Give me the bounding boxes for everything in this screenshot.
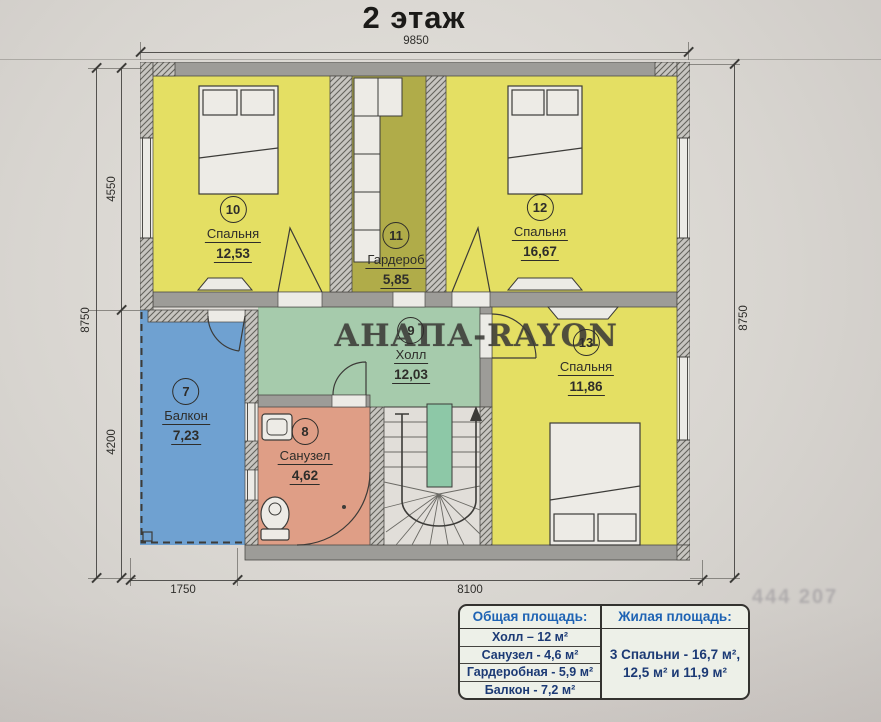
room-number-badge: 12 <box>527 194 554 221</box>
room-number-badge: 10 <box>220 196 247 223</box>
room-number-badge: 7 <box>173 378 200 405</box>
room-name: Балкон <box>162 408 210 425</box>
legend-total-header: Общая площадь: <box>460 606 600 629</box>
room-label-hall-9: 9 Холл 12,03 <box>392 317 430 384</box>
legend-total-column: Общая площадь: Холл – 12 м² Санузел - 4,… <box>460 606 602 698</box>
room-name: Спальня <box>205 226 261 243</box>
floor-plan-photo: 2 этаж 444 207 <box>0 0 881 722</box>
dimension-line-right <box>734 64 735 578</box>
area-legend-table: Общая площадь: Холл – 12 м² Санузел - 4,… <box>458 604 750 700</box>
dimension-value-top: 9850 <box>394 35 438 47</box>
extension-line <box>130 558 131 586</box>
dimension-value-left-lower: 4200 <box>106 420 118 464</box>
legend-living-column: Жилая площадь: 3 Спальни - 16,7 м², 12,5… <box>602 606 748 698</box>
dimension-value-right: 8750 <box>738 296 750 340</box>
room-name: Спальня <box>558 359 614 376</box>
legend-row-bathroom: Санузел - 4,6 м² <box>460 647 600 665</box>
room-name: Холл <box>394 347 429 364</box>
room-label-bedroom-12: 12 Спальня 16,67 <box>512 194 568 261</box>
room-area: 12,03 <box>392 367 430 384</box>
bed-bedroom-13 <box>550 423 640 545</box>
dimension-value-left-outer: 8750 <box>80 298 92 342</box>
room-area: 12,53 <box>214 246 252 263</box>
dimension-value-left-upper: 4550 <box>106 167 118 211</box>
room-label-balcony-7: 7 Балкон 7,23 <box>162 378 210 445</box>
legend-living-line: 3 Спальни - 16,7 м², <box>610 647 740 662</box>
dimension-line-left-outer <box>96 68 97 578</box>
dimension-line-top <box>140 52 688 53</box>
bed-bedroom-10 <box>199 86 278 194</box>
room-label-bedroom-10: 10 Спальня 12,53 <box>205 196 261 263</box>
room-label-wardrobe-11: 11 Гардероб 5,85 <box>365 222 426 289</box>
room-area: 7,23 <box>171 428 201 445</box>
floor-plan-drawing <box>140 62 690 568</box>
dimension-value-bottom-left: 1750 <box>161 584 205 596</box>
room-label-bathroom-8: 8 Санузел 4,62 <box>278 418 333 485</box>
room-name: Санузел <box>278 448 333 465</box>
room-label-bedroom-13: 13 Спальня 11,86 <box>558 329 614 396</box>
room-name: Спальня <box>512 224 568 241</box>
room-area: 5,85 <box>381 272 411 289</box>
stair-shaft <box>427 404 452 487</box>
room-area: 11,86 <box>567 379 604 396</box>
legend-living-header: Жилая площадь: <box>602 606 748 629</box>
room-name: Гардероб <box>365 252 426 269</box>
dimension-line-left-inner <box>121 68 122 578</box>
legend-living-line: 12,5 м² и 11,9 м² <box>623 665 727 680</box>
dimension-line-bottom <box>130 580 702 581</box>
bed-bedroom-12 <box>508 86 582 194</box>
room-number-badge: 11 <box>382 222 409 249</box>
extension-line <box>702 560 703 586</box>
room-number-badge: 8 <box>292 418 319 445</box>
dimension-value-bottom-right: 8100 <box>448 584 492 596</box>
legend-row-wardrobe: Гардеробная - 5,9 м² <box>460 664 600 682</box>
page-edge-line <box>0 59 881 60</box>
room-number-badge: 9 <box>397 317 424 344</box>
legend-living-body: 3 Спальни - 16,7 м², 12,5 м² и 11,9 м² <box>602 629 748 698</box>
ghost-watermark-text: 444 207 <box>752 586 838 609</box>
legend-row-balcony: Балкон - 7,2 м² <box>460 682 600 699</box>
page-title: 2 этаж <box>0 0 828 36</box>
room-area: 16,67 <box>521 244 559 261</box>
room-area: 4,62 <box>290 468 320 485</box>
legend-row-hall: Холл – 12 м² <box>460 629 600 647</box>
toilet <box>261 497 289 540</box>
room-number-badge: 13 <box>573 329 600 356</box>
